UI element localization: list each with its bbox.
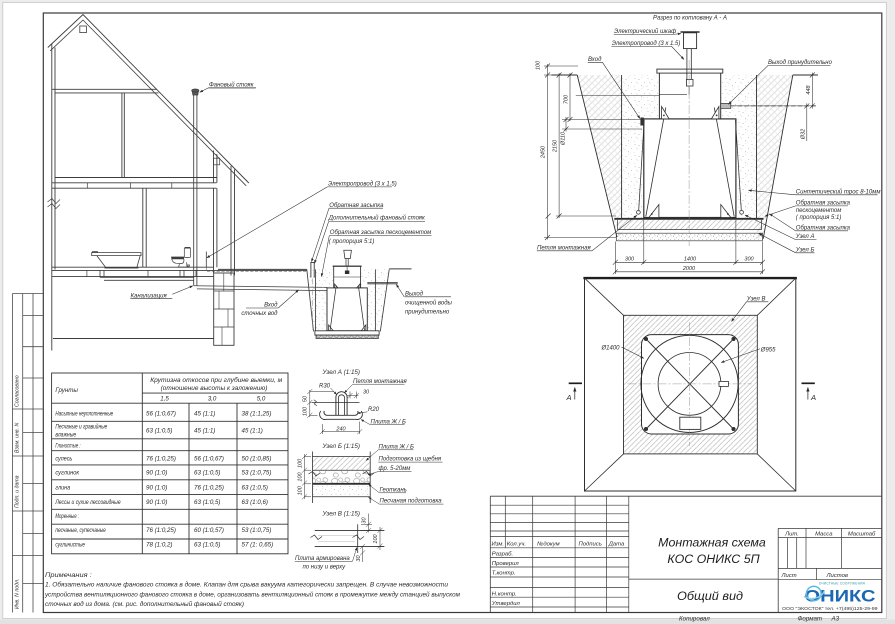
svg-text:Изм.: Изм. — [492, 541, 505, 547]
svg-text:57 (1: 0,65): 57 (1: 0,65) — [242, 541, 274, 548]
svg-text:700: 700 — [563, 94, 569, 104]
svg-text:сточных вод из дома. (см. рис.: сточных вод из дома. (см. рис. дополните… — [45, 600, 244, 608]
svg-text:1400: 1400 — [684, 257, 697, 263]
svg-text:Песчаные и гравийные: Песчаные и гравийные — [55, 423, 107, 430]
svg-text:1. Обязательно наличие фановог: 1. Обязательно наличие фанового стояка в… — [45, 581, 448, 589]
svg-text:Листов: Листов — [826, 573, 848, 579]
svg-text:Инв. N подл.: Инв. N подл. — [14, 579, 20, 609]
svg-text:53 (1:0,75): 53 (1:0,75) — [242, 470, 272, 477]
svg-text:КОС ОНИКС 5П: КОС ОНИКС 5П — [667, 552, 759, 566]
svg-text:Дата: Дата — [608, 541, 625, 547]
svg-text:100: 100 — [298, 471, 304, 481]
svg-text:53 (1:0,75): 53 (1:0,75) — [242, 527, 272, 534]
svg-text:глина: глина — [55, 484, 70, 491]
svg-text:A: A — [566, 393, 572, 402]
svg-text:Масса: Масса — [815, 531, 833, 537]
svg-text:Узел А: Узел А — [795, 234, 815, 240]
svg-text:Петля монтажная: Петля монтажная — [537, 245, 592, 251]
svg-text:Обратная засыпка: Обратная засыпка — [796, 200, 851, 206]
svg-text:Ø955: Ø955 — [760, 347, 776, 353]
svg-text:100: 100 — [303, 406, 309, 416]
svg-text:300: 300 — [625, 257, 635, 263]
svg-text:Узел Б: Узел Б — [795, 247, 815, 253]
svg-text:Обратная засыпка пескоцементом: Обратная засыпка пескоцементом — [330, 230, 432, 236]
svg-text:63 (1:0,5): 63 (1:0,5) — [242, 484, 268, 491]
svg-text:Разрез по котловану А - А: Разрез по котловану А - А — [653, 16, 727, 22]
svg-text:Канализация: Канализация — [131, 293, 168, 299]
svg-text:100: 100 — [536, 60, 542, 70]
svg-text:50: 50 — [303, 395, 309, 402]
svg-text:2000: 2000 — [682, 266, 696, 272]
svg-text:Геоткань: Геоткань — [380, 487, 407, 493]
svg-text:Песчаная подготовка: Песчаная подготовка — [380, 499, 443, 505]
svg-text:100: 100 — [298, 485, 304, 495]
svg-text:3,0: 3,0 — [208, 396, 217, 403]
svg-text:63 (1:0,5): 63 (1:0,5) — [194, 499, 220, 506]
svg-text:76 (1:0,25): 76 (1:0,25) — [146, 527, 176, 534]
svg-text:Электропровод (3 х 1.5): Электропровод (3 х 1.5) — [612, 41, 681, 47]
svg-text:Ø1400: Ø1400 — [601, 345, 621, 351]
svg-text:Подготовка из щебня: Подготовка из щебня — [379, 457, 442, 463]
svg-text:Электропровод (3 х 1.5): Электропровод (3 х 1.5) — [328, 181, 397, 187]
svg-text:Моренные :: Моренные : — [55, 513, 79, 520]
svg-text:Утвердил: Утвердил — [491, 601, 521, 607]
svg-text:448: 448 — [806, 84, 812, 94]
svg-text:1,5: 1,5 — [160, 396, 169, 403]
svg-text:Подпись: Подпись — [579, 541, 602, 547]
svg-text:Масштаб: Масштаб — [848, 531, 876, 537]
svg-text:песчаные, супесчаные: песчаные, супесчаные — [55, 527, 106, 534]
svg-text:ООО "ЭКОСТОК" тел. +7(495)1: ООО "ЭКОСТОК" тел. +7(495)125-29-99 — [782, 606, 878, 611]
svg-text:60 (1:0,57): 60 (1:0,57) — [194, 527, 224, 534]
svg-text:100: 100 — [298, 458, 304, 468]
svg-text:76 (1:0,25): 76 (1:0,25) — [194, 484, 224, 491]
svg-text:Лессы и сухие лессовидные: Лессы и сухие лессовидные — [55, 499, 121, 506]
svg-text:Ø32: Ø32 — [801, 129, 807, 140]
svg-text:63 (1:0,5): 63 (1:0,5) — [194, 541, 220, 548]
svg-text:76 (1:0,25): 76 (1:0,25) — [146, 456, 176, 463]
svg-text:38 (1:1,25): 38 (1:1,25) — [242, 410, 272, 417]
svg-text:Общий вид: Общий вид — [677, 589, 743, 603]
svg-text:Примечания :: Примечания : — [45, 572, 92, 579]
svg-text:Вход: Вход — [588, 57, 602, 63]
svg-text:63 (1:0,5): 63 (1:0,5) — [194, 470, 220, 477]
svg-text:30: 30 — [361, 517, 367, 524]
svg-text:240: 240 — [335, 426, 346, 432]
svg-text:2450: 2450 — [541, 145, 547, 159]
svg-text:суглинистые: суглинистые — [55, 541, 85, 548]
svg-text:Ø110: Ø110 — [560, 131, 566, 146]
svg-text:по низу и верху: по низу и верху — [303, 564, 347, 570]
svg-text:Взам. инв. N: Взам. инв. N — [14, 423, 20, 453]
svg-text:Подп. и дата: Подп. и дата — [14, 475, 20, 508]
svg-text:R30: R30 — [319, 383, 331, 389]
svg-text:50 (1:0,85): 50 (1:0,85) — [242, 456, 272, 463]
svg-text:30: 30 — [356, 555, 362, 562]
svg-text:Грунты: Грунты — [55, 387, 78, 394]
svg-text:Плита Ж / Б: Плита Ж / Б — [379, 444, 415, 450]
svg-text:30: 30 — [363, 389, 370, 395]
svg-text:45 (1:1): 45 (1:1) — [194, 410, 215, 417]
svg-text:Выход принудительно: Выход принудительно — [768, 60, 833, 66]
svg-text:фр. 5-20мм: фр. 5-20мм — [379, 466, 411, 472]
svg-text:Узел В: Узел В — [746, 296, 766, 302]
svg-text:Кол.уч.: Кол.уч. — [507, 541, 526, 547]
svg-text:90 (1:0): 90 (1:0) — [146, 484, 167, 491]
svg-text:Проверил: Проверил — [492, 561, 520, 567]
svg-text:45 (1:1): 45 (1:1) — [242, 427, 263, 434]
svg-text:90 (1:0): 90 (1:0) — [146, 470, 167, 477]
svg-text:( пропорция 5:1): ( пропорция 5:1) — [796, 215, 842, 221]
svg-text:пескоцементом: пескоцементом — [796, 208, 842, 214]
svg-text:45 (1:1): 45 (1:1) — [194, 427, 215, 434]
svg-text:принудительно: принудительно — [405, 309, 450, 315]
svg-text:100: 100 — [373, 533, 379, 543]
svg-text:Обратная засыпка: Обратная засыпка — [329, 203, 384, 209]
svg-text:влажные: влажные — [55, 431, 76, 438]
svg-text:ОЧИСТНЫЕ СООРУЖЕНИЯ: ОЧИСТНЫЕ СООРУЖЕНИЯ — [819, 582, 866, 586]
svg-text:5,0: 5,0 — [257, 396, 266, 403]
svg-text:90 (1:0): 90 (1:0) — [146, 499, 167, 506]
svg-text:Лит.: Лит. — [784, 531, 799, 537]
svg-text:( пропорция 5:1): ( пропорция 5:1) — [329, 239, 375, 245]
svg-text:устройства вентиляционного фан: устройства вентиляционного фанового стоя… — [44, 590, 461, 598]
svg-text:очищенной воды: очищенной воды — [405, 300, 453, 307]
svg-text:Синтетический трос 8-10мм: Синтетический трос 8-10мм — [796, 188, 881, 195]
svg-text:Формат: Формат — [798, 616, 823, 623]
svg-text:Крутизна откосов при глубине в: Крутизна откосов при глубине выемки, м — [150, 377, 283, 384]
svg-text:R20: R20 — [368, 407, 380, 413]
svg-text:63 (1:0,6): 63 (1:0,6) — [242, 499, 268, 506]
svg-text:Электрический шкаф: Электрический шкаф — [614, 28, 676, 35]
svg-text:сточных вод: сточных вод — [241, 311, 278, 317]
svg-text:78 (1:0,2): 78 (1:0,2) — [146, 541, 172, 548]
svg-text:Насыпные неуплотненные: Насыпные неуплотненные — [55, 410, 113, 417]
svg-text:Узел В (1:15): Узел В (1:15) — [321, 511, 360, 517]
svg-text:Плита Ж / Б: Плита Ж / Б — [371, 419, 407, 425]
svg-text:300: 300 — [744, 257, 754, 263]
svg-text:Обратная засыпка: Обратная засыпка — [796, 225, 851, 231]
svg-text:63 (1:0,5): 63 (1:0,5) — [146, 427, 172, 434]
svg-text:Т.контр.: Т.контр. — [492, 571, 516, 577]
svg-text:2150: 2150 — [553, 139, 559, 153]
svg-text:Петля монтажная: Петля монтажная — [353, 379, 408, 385]
svg-text:Фановый стояк: Фановый стояк — [209, 82, 255, 89]
svg-text:Согласовано: Согласовано — [14, 375, 20, 407]
svg-text:56 (1:0,67): 56 (1:0,67) — [146, 410, 176, 417]
svg-text:Узел Б (1:15): Узел Б (1:15) — [321, 444, 360, 450]
svg-text:Лист: Лист — [781, 573, 797, 579]
svg-text:Дополнительный фановый стояк: Дополнительный фановый стояк — [328, 215, 426, 222]
svg-text:Узел А (1:15): Узел А (1:15) — [321, 370, 360, 376]
svg-text:56 (1:0,67): 56 (1:0,67) — [194, 456, 224, 463]
svg-text:супесь: супесь — [55, 456, 72, 463]
svg-text:A: A — [810, 393, 816, 402]
svg-text:Плита армирована: Плита армирована — [295, 556, 350, 562]
svg-text:Глинистые :: Глинистые : — [55, 442, 80, 449]
svg-text:ОНИКС: ОНИКС — [805, 587, 876, 606]
svg-text:суглинок: суглинок — [55, 470, 80, 477]
svg-text:№докум: №докум — [537, 540, 560, 547]
svg-text:Разраб.: Разраб. — [492, 551, 513, 557]
svg-text:Монтажная схема: Монтажная схема — [658, 536, 766, 550]
svg-text:А3: А3 — [831, 616, 840, 623]
svg-text:Копировал: Копировал — [679, 616, 710, 623]
svg-text:Вход: Вход — [264, 303, 278, 309]
svg-text:(отношение высоты к заложению): (отношение высоты к заложению) — [161, 385, 268, 392]
svg-text:Н.контр.: Н.контр. — [492, 591, 517, 597]
